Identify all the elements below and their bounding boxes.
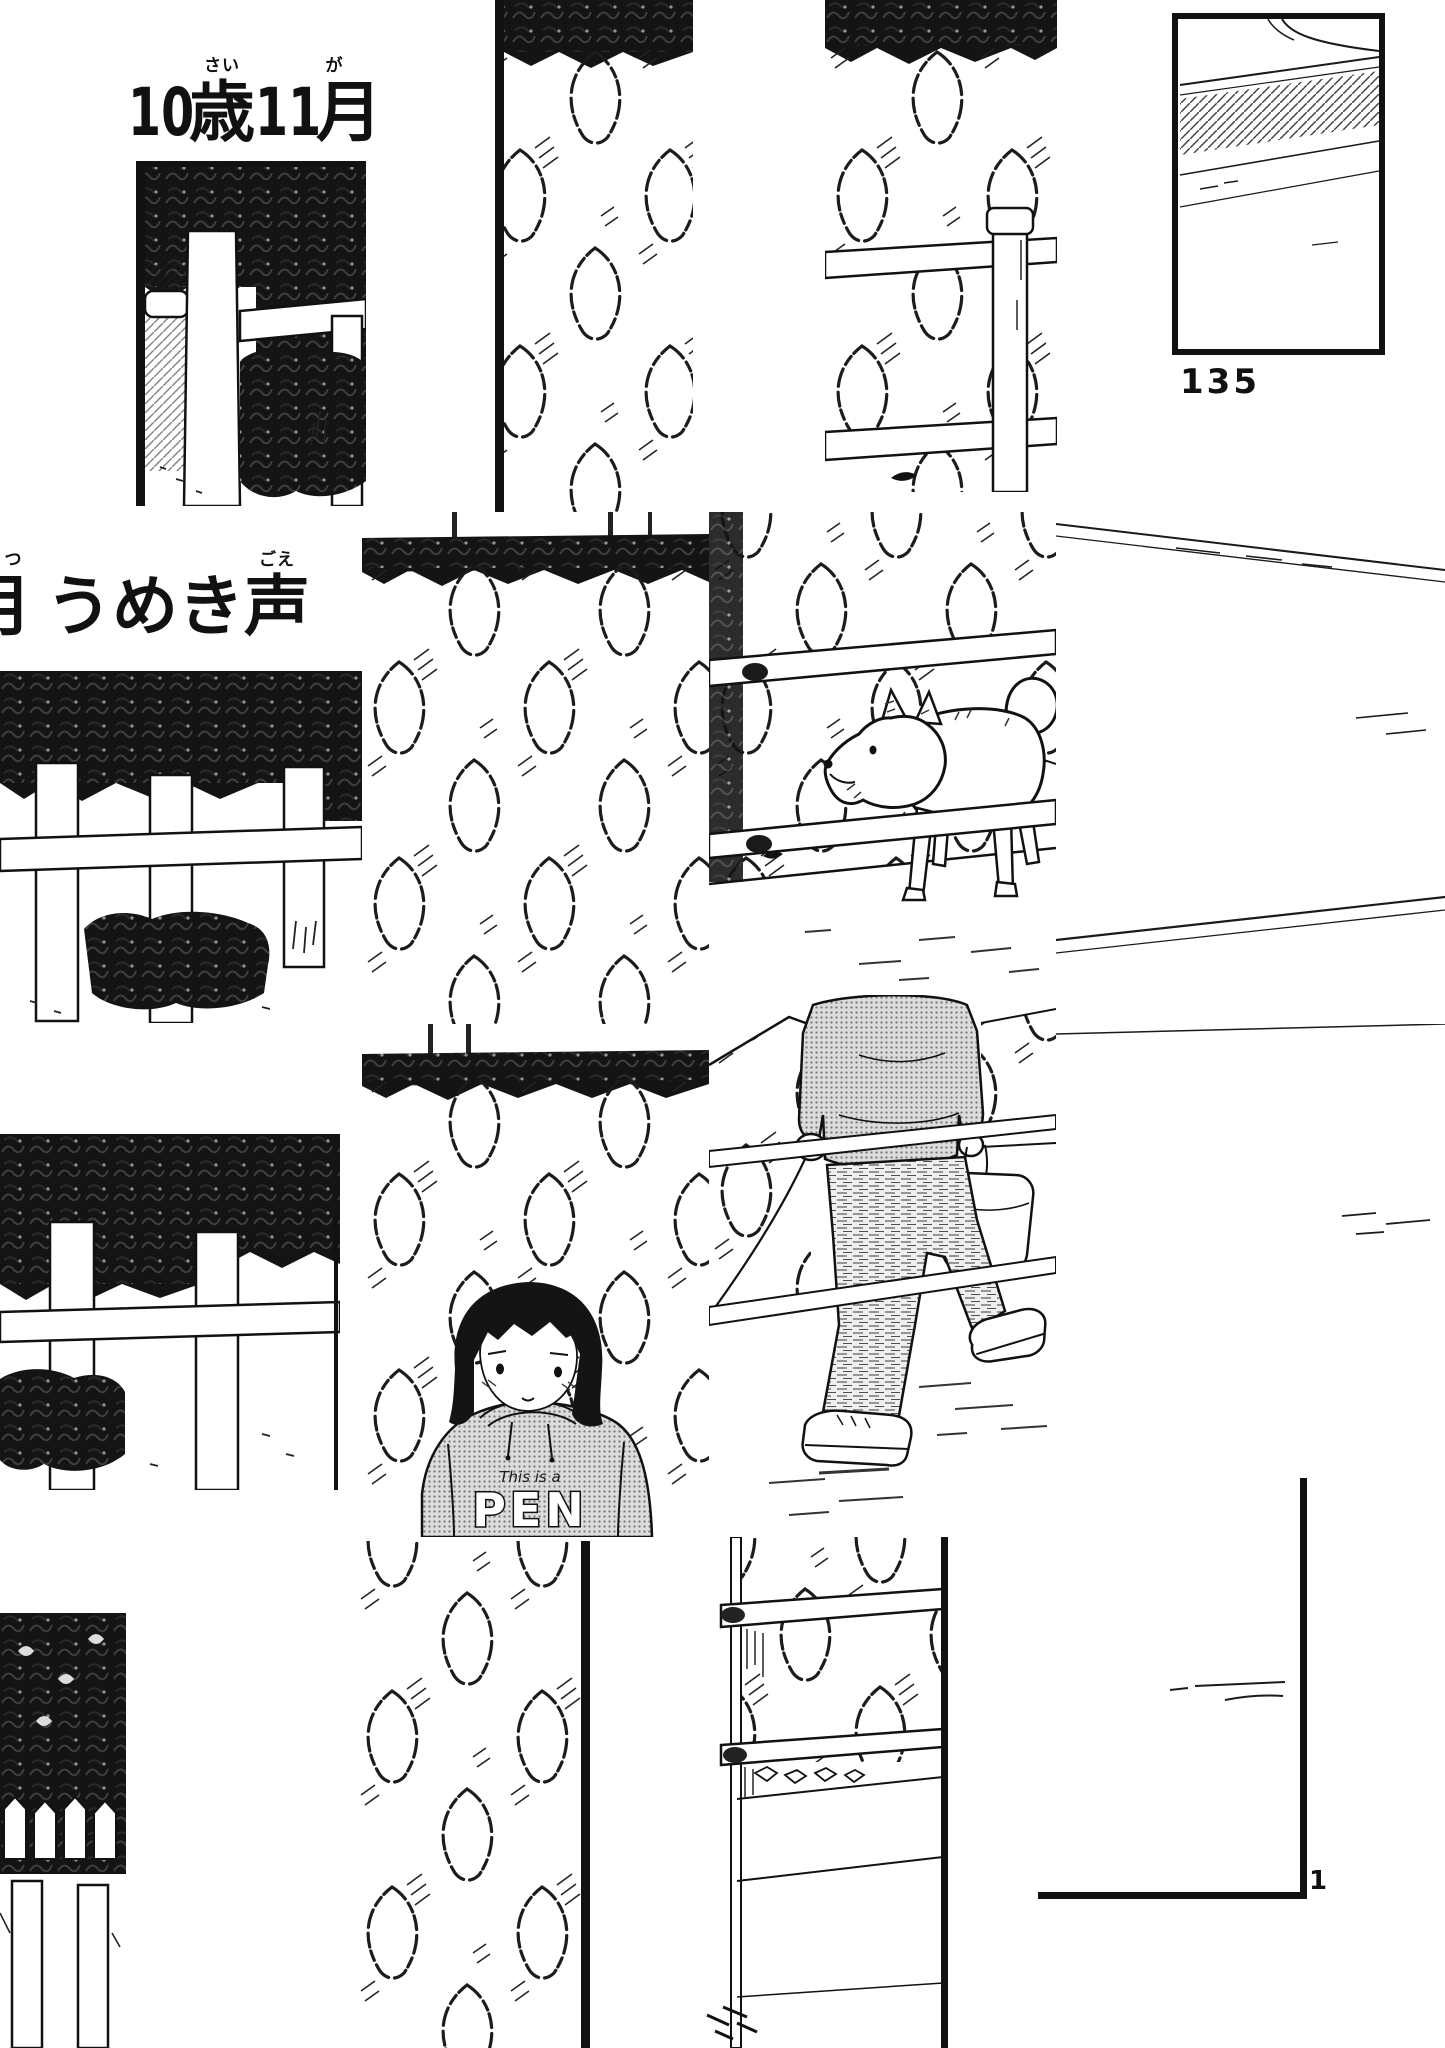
stone-wall-tile-1 bbox=[483, 0, 709, 512]
panel-fence-tree-1 bbox=[136, 161, 366, 506]
page-number-1: 1 bbox=[1309, 1866, 1327, 1896]
panel-dog-walking bbox=[709, 512, 1056, 995]
road-tile-1 bbox=[1056, 512, 1445, 1024]
page-number-135: 135 bbox=[1180, 362, 1260, 402]
panel-fence-tree-3 bbox=[0, 1134, 340, 1490]
caption-age-kanji: さい歳 bbox=[189, 80, 255, 146]
stone-wall-tile-2 bbox=[362, 512, 709, 1024]
panel-fence-strip bbox=[0, 1613, 126, 2048]
stone-wall-fence-tile bbox=[825, 0, 1057, 492]
caption-age-num: 10 bbox=[128, 80, 189, 146]
panel-girl-by-wall: This is a PEN bbox=[362, 1024, 709, 1537]
panel-fence-tree-2 bbox=[0, 671, 362, 1023]
panel-wall-steps bbox=[693, 1537, 948, 2048]
manga-page-collage: 10さい歳11が月 bbox=[0, 0, 1445, 2048]
panel-border-right bbox=[1300, 1478, 1307, 1898]
road-tile-2 bbox=[1056, 1024, 1445, 1474]
caption-month-num: 11 bbox=[255, 80, 316, 146]
panel-border-bottom bbox=[1038, 1892, 1307, 1899]
road-dashes-bottom-right bbox=[1165, 1676, 1300, 1704]
hoodie-pen-text: PEN bbox=[472, 1483, 588, 1537]
front-sneaker bbox=[803, 1411, 912, 1466]
panel-road-corner bbox=[1172, 13, 1385, 355]
panel-person-walking-dog bbox=[709, 995, 1056, 1536]
caption-voice-kanji: ごえ声 bbox=[244, 574, 310, 640]
stone-wall-tile-3 bbox=[355, 1541, 590, 2048]
caption-groan-word: うめき bbox=[46, 574, 244, 640]
caption-partial-kanji: つ月 bbox=[0, 574, 32, 640]
rubble-leaves bbox=[755, 1767, 864, 1783]
caption-month-kanji: が月 bbox=[316, 80, 376, 146]
